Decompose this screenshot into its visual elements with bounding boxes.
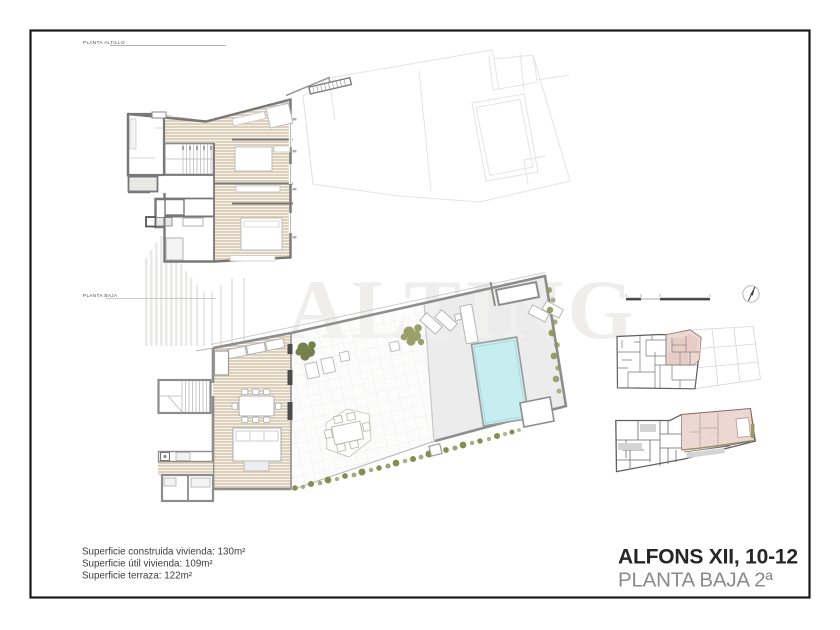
svg-text:ALFONS XII, 10-12: ALFONS XII, 10-12 [618,546,798,569]
svg-text:Superficie útil vivienda: 109m: Superficie útil vivienda: 109m² [82,559,213,570]
svg-text:PLANTA ALTILLO: PLANTA ALTILLO [83,40,125,45]
svg-text:Superficie terraza: 122m²: Superficie terraza: 122m² [82,571,193,582]
svg-text:Superficie construida vivienda: Superficie construida vivienda: 130m² [82,547,246,558]
svg-text:PLANTA BAJA 2ª: PLANTA BAJA 2ª [618,569,773,592]
svg-text:PLANTA BAJA: PLANTA BAJA [83,293,118,298]
